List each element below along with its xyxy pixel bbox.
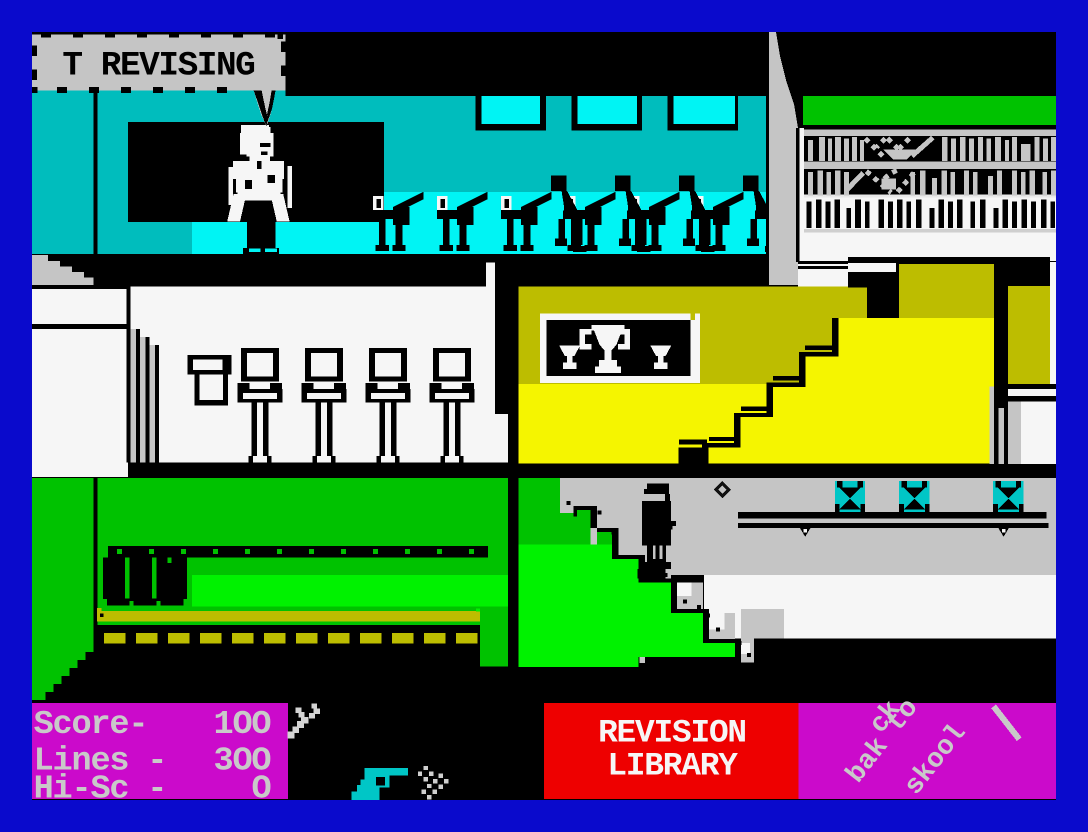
svg-text:LIBRARY: LIBRARY xyxy=(607,747,738,784)
svg-text:O: O xyxy=(251,771,270,809)
svg-text:Score-: Score- xyxy=(34,706,148,744)
svg-text:REVISION: REVISION xyxy=(598,715,746,752)
svg-text:T REVISING: T REVISING xyxy=(62,46,254,85)
svg-text:Hi-Sc -: Hi-Sc - xyxy=(34,771,167,809)
svg-text:1OO: 1OO xyxy=(214,706,271,744)
